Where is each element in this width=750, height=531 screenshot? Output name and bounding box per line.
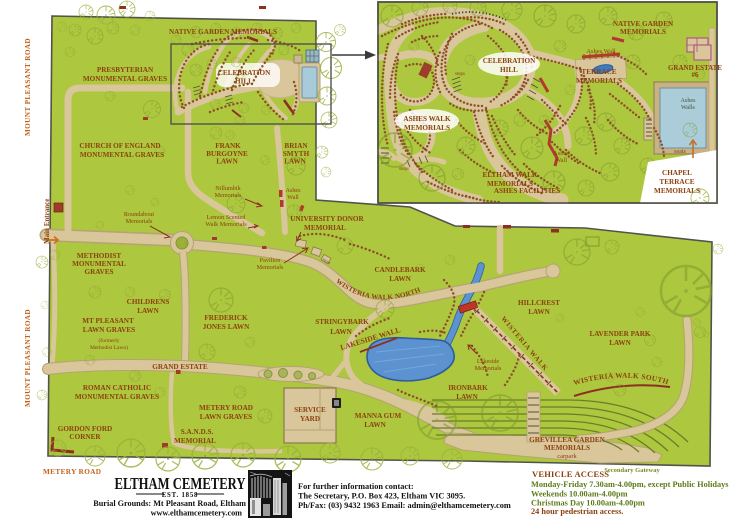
svg-text:Nillumbik: Nillumbik (215, 185, 241, 192)
svg-text:FRANK: FRANK (215, 142, 241, 150)
svg-text:Pavilion: Pavilion (260, 257, 281, 264)
svg-text:Memorials: Memorials (215, 192, 242, 199)
svg-text:LAWN: LAWN (216, 158, 238, 166)
svg-text:MONUMENTAL: MONUMENTAL (72, 260, 126, 268)
svg-text:GRAVES: GRAVES (84, 268, 113, 276)
svg-text:Wall: Wall (555, 157, 567, 164)
svg-text:Secondary Gateway: Secondary Gateway (604, 467, 660, 474)
svg-text:ELTHAM WALK: ELTHAM WALK (483, 171, 538, 179)
svg-text:MEMORIALS: MEMORIALS (620, 28, 666, 36)
svg-text:Weekends 10.00am-4.00pm: Weekends 10.00am-4.00pm (531, 490, 628, 499)
svg-text:For further information contac: For further information contact: (298, 482, 414, 491)
svg-text:The Secretary, P.O. Box 423, E: The Secretary, P.O. Box 423, Eltham VIC … (298, 492, 465, 501)
svg-text:MONUMENTAL GRAVES: MONUMENTAL GRAVES (80, 151, 164, 159)
svg-text:ASHES WALK: ASHES WALK (403, 115, 451, 123)
svg-text:HILL: HILL (235, 78, 253, 86)
svg-text:Ashes: Ashes (285, 187, 301, 194)
svg-text:UNIVERSITY DONOR: UNIVERSITY DONOR (290, 215, 364, 223)
svg-text:FREDERICK: FREDERICK (204, 314, 248, 322)
svg-text:CELEBRATION: CELEBRATION (483, 57, 536, 65)
svg-text:CHURCH OF ENGLAND: CHURCH OF ENGLAND (79, 142, 160, 150)
svg-text:Lemon Scented: Lemon Scented (207, 214, 247, 221)
svg-text:MANNA GUM: MANNA GUM (355, 412, 402, 420)
svg-text:METERY ROAD: METERY ROAD (199, 404, 253, 412)
svg-text:MONUMENTAL GRAVES: MONUMENTAL GRAVES (75, 393, 159, 401)
svg-text:Lakeside: Lakeside (477, 358, 500, 365)
svg-text:STRINGYBARK: STRINGYBARK (315, 318, 369, 326)
svg-text:Walk Memorials: Walk Memorials (205, 221, 247, 228)
svg-text:LAWN: LAWN (456, 393, 478, 401)
svg-text:EST. 1858: EST. 1858 (162, 492, 199, 499)
svg-text:Walls: Walls (681, 104, 696, 111)
svg-text:www.elthamcemetery.com: www.elthamcemetery.com (151, 509, 243, 518)
svg-text:CANDLEBARK: CANDLEBARK (374, 266, 426, 274)
svg-text:ELTHAM CEMETERY: ELTHAM CEMETERY (115, 474, 246, 493)
svg-text:IRONBARK: IRONBARK (448, 384, 488, 392)
svg-text:MEMORIALS: MEMORIALS (654, 187, 700, 195)
svg-text:seats: seats (674, 149, 686, 155)
svg-text:MONUMENTAL GRAVES: MONUMENTAL GRAVES (83, 75, 167, 83)
svg-text:NATIVE GARDEN: NATIVE GARDEN (613, 20, 674, 28)
svg-text:Main Entrance: Main Entrance (43, 199, 51, 244)
svg-text:LAWN GRAVES: LAWN GRAVES (200, 413, 252, 421)
svg-text:Ashes Wall: Ashes Wall (586, 48, 616, 55)
svg-text:GREVILLEA GARDEN: GREVILLEA GARDEN (529, 436, 605, 444)
svg-text:Ashes: Ashes (680, 97, 696, 104)
svg-text:LAWN: LAWN (364, 421, 386, 429)
svg-text:steps: steps (399, 167, 409, 172)
svg-text:S.A.N.D.S.: S.A.N.D.S. (181, 428, 214, 436)
svg-text:LAWN: LAWN (284, 158, 306, 166)
svg-text:MOUNT PLEASANT ROAD: MOUNT PLEASANT ROAD (24, 38, 32, 136)
svg-text:MEMORIAL: MEMORIAL (174, 437, 216, 445)
svg-text:HILLCREST: HILLCREST (518, 299, 560, 307)
svg-text:24 hour pedestrian access.: 24 hour pedestrian access. (531, 507, 624, 516)
svg-text:CORNER: CORNER (69, 433, 101, 441)
svg-text:ROMAN CATHOLIC: ROMAN CATHOLIC (83, 384, 151, 392)
svg-text:MOUNT PLEASANT ROAD: MOUNT PLEASANT ROAD (24, 309, 32, 407)
svg-text:METERY ROAD: METERY ROAD (43, 468, 101, 476)
svg-text:LAWN: LAWN (330, 328, 352, 336)
svg-text:MEMORIALS: MEMORIALS (404, 124, 450, 132)
svg-text:SERVICE: SERVICE (294, 406, 326, 414)
svg-text:LAWN GRAVES: LAWN GRAVES (83, 326, 135, 334)
svg-text:VEHICLE ACCESS: VEHICLE ACCESS (532, 469, 609, 479)
svg-text:carpark: carpark (557, 453, 577, 460)
svg-text:TERRACE: TERRACE (659, 178, 694, 186)
svg-text:(formerly: (formerly (98, 337, 119, 344)
svg-text:Roundabout: Roundabout (124, 211, 155, 218)
svg-text:CHILDRENS: CHILDRENS (127, 298, 170, 306)
svg-text:CELEBRATION: CELEBRATION (218, 69, 271, 77)
svg-text:Ashes: Ashes (553, 150, 569, 157)
svg-text:Memorials: Memorials (126, 218, 153, 225)
svg-text:MT PLEASANT: MT PLEASANT (82, 317, 134, 325)
svg-text:MEMORIALS: MEMORIALS (544, 444, 590, 452)
svg-text:TERRACE: TERRACE (581, 68, 616, 76)
svg-text:LAWN: LAWN (389, 275, 411, 283)
svg-text:HILL: HILL (500, 66, 518, 74)
svg-text:LAWN: LAWN (137, 307, 159, 315)
svg-text:BRIAN: BRIAN (284, 142, 308, 150)
svg-text:CHAPEL: CHAPEL (662, 169, 692, 177)
svg-text:Monday-Friday 7.30am-4.00pm, e: Monday-Friday 7.30am-4.00pm, except Publ… (531, 480, 729, 489)
svg-text:#6: #6 (692, 71, 700, 79)
svg-text:LAWN: LAWN (609, 339, 631, 347)
svg-text:YARD: YARD (300, 415, 320, 423)
svg-text:Burial Grounds: Mt Pleasant Ro: Burial Grounds: Mt Pleasant Road, Eltham (93, 499, 246, 508)
svg-text:GORDON FORD: GORDON FORD (58, 425, 113, 433)
svg-text:LAVENDER PARK: LAVENDER PARK (589, 330, 650, 338)
svg-text:Ph/Fax: (03) 9432 1963 Email:: Ph/Fax: (03) 9432 1963 Email: admin@elth… (298, 501, 511, 510)
svg-text:MEMORIALS: MEMORIALS (576, 77, 622, 85)
svg-text:Memorials: Memorials (257, 264, 284, 271)
svg-text:NATIVE GARDEN MEMORIALS: NATIVE GARDEN MEMORIALS (169, 28, 277, 36)
svg-text:JONES LAWN: JONES LAWN (203, 323, 250, 331)
svg-text:LAWN: LAWN (528, 308, 550, 316)
svg-text:steps: steps (455, 72, 465, 77)
svg-text:PRESBYTERIAN: PRESBYTERIAN (97, 66, 154, 74)
svg-text:ASHES FACILITIES: ASHES FACILITIES (494, 187, 560, 195)
svg-text:Methodist Lawn): Methodist Lawn) (90, 344, 128, 351)
svg-text:Memorials: Memorials (475, 365, 502, 372)
svg-text:MEMORIAL: MEMORIAL (304, 224, 346, 232)
svg-text:METHODIST: METHODIST (77, 252, 122, 260)
svg-text:GRAND ESTATE: GRAND ESTATE (152, 363, 208, 371)
svg-text:Wall: Wall (287, 194, 299, 201)
